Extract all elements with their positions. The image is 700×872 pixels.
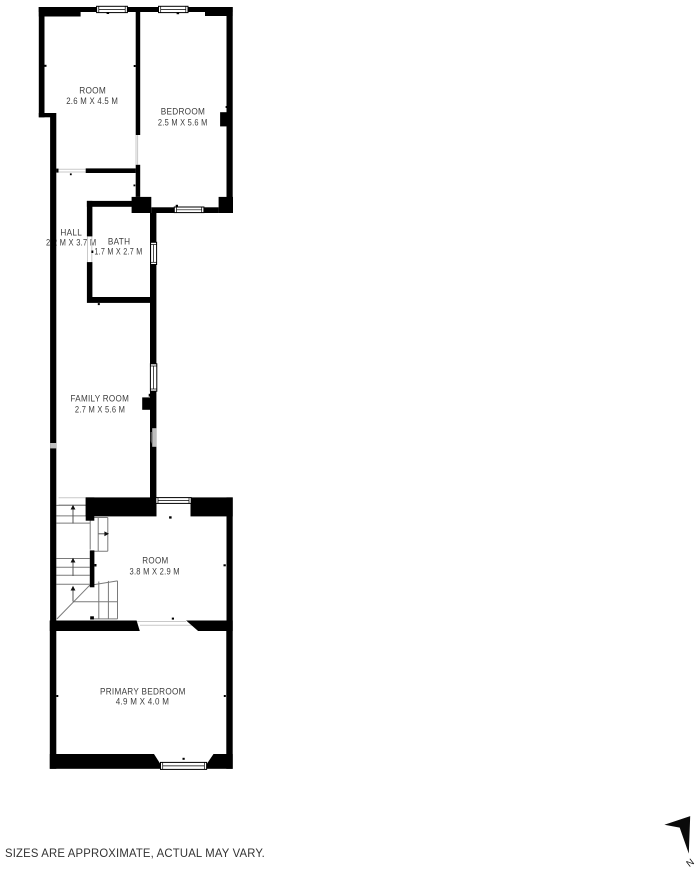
svg-text:3.8 M X 2.9 M: 3.8 M X 2.9 M [130, 567, 180, 577]
svg-text:BEDROOM: BEDROOM [161, 106, 206, 116]
svg-text:2.7 M X 5.6 M: 2.7 M X 5.6 M [75, 404, 125, 414]
svg-text:BATH: BATH [108, 236, 130, 246]
svg-text:ROOM: ROOM [79, 85, 106, 95]
svg-text:PRIMARY BEDROOM: PRIMARY BEDROOM [100, 686, 186, 696]
svg-text:2.5 M X 5.6 M: 2.5 M X 5.6 M [158, 117, 208, 127]
svg-text:2.6 M X 4.5 M: 2.6 M X 4.5 M [66, 96, 118, 106]
svg-text:FAMILY ROOM: FAMILY ROOM [71, 394, 130, 404]
svg-text:4.9 M X 4.0 M: 4.9 M X 4.0 M [116, 696, 170, 706]
svg-text:SIZES ARE APPROXIMATE, ACTUAL: SIZES ARE APPROXIMATE, ACTUAL MAY VARY. [5, 846, 265, 860]
svg-text:HALL: HALL [60, 228, 82, 238]
svg-text:ROOM: ROOM [142, 556, 168, 566]
svg-text:1.7 M X 2.7 M: 1.7 M X 2.7 M [94, 247, 142, 257]
